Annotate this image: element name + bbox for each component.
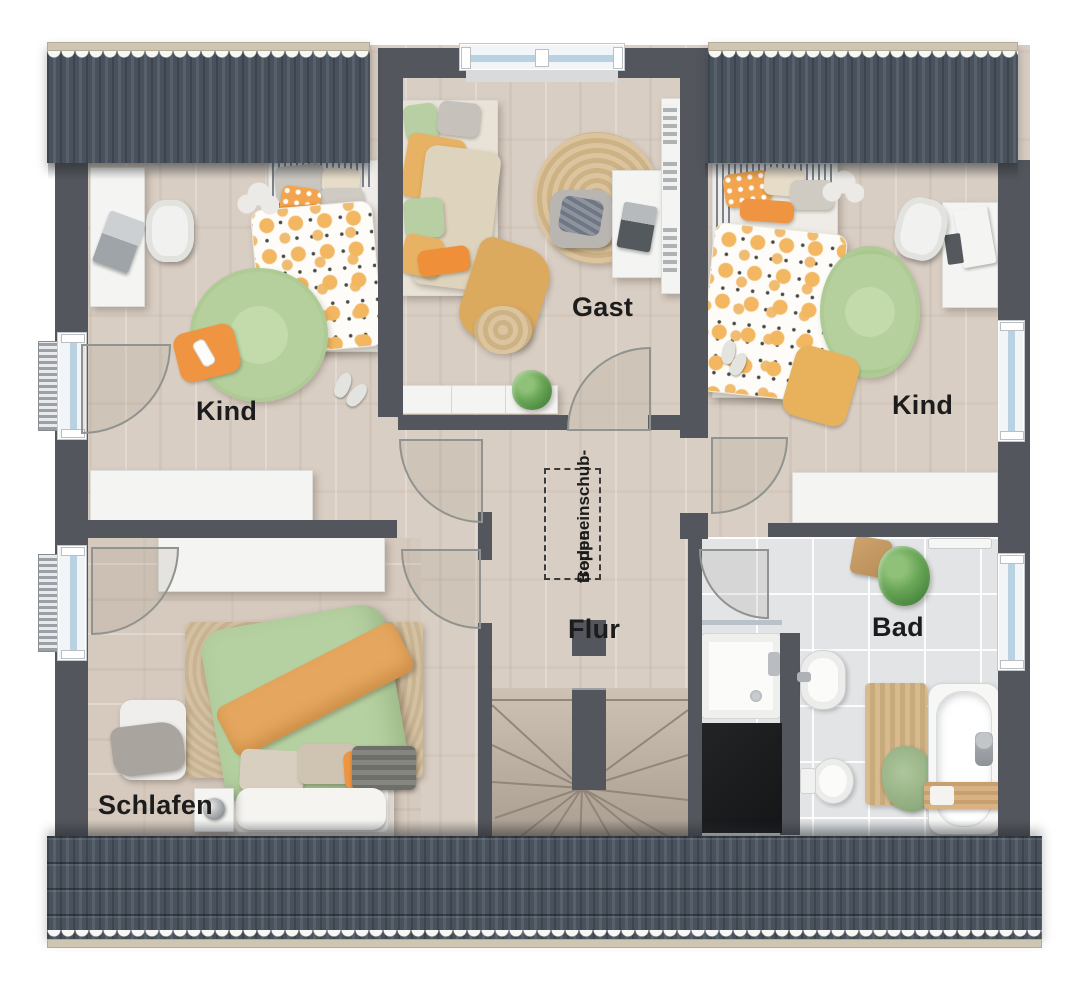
window (58, 546, 86, 660)
roof-section-top-left (47, 42, 370, 163)
wall (680, 48, 708, 438)
roof-shadow (48, 163, 368, 179)
roof-shadow (705, 163, 1018, 179)
roof-section-top-right (708, 42, 1018, 163)
shower-tray (700, 633, 782, 719)
blanket-gray (109, 720, 187, 778)
wall (55, 160, 88, 845)
tub-faucet (975, 732, 993, 766)
shower-faucet (768, 652, 780, 676)
room-label-gast: Gast (572, 292, 633, 323)
wall (680, 513, 708, 539)
shower-glass (700, 620, 782, 625)
room-label-bad: Bad (872, 612, 924, 643)
wall (998, 160, 1030, 845)
room-label-kind-left: Kind (196, 396, 257, 427)
books (663, 160, 677, 190)
pillow-beige (239, 748, 305, 793)
pouf (474, 306, 532, 354)
desk-chair (146, 200, 194, 262)
toilet-bowl (812, 758, 854, 804)
dark-shaft (698, 723, 782, 833)
towel-rail (928, 538, 992, 549)
roof-section-bottom (47, 836, 1042, 948)
toilet-tank (800, 768, 816, 794)
books (663, 104, 677, 144)
armchair-pillow (557, 195, 605, 238)
pillow-gray (436, 100, 481, 138)
window (460, 44, 624, 70)
window (998, 554, 1024, 670)
room-label-schlafen: Schlafen (98, 790, 213, 821)
cloud-decor (237, 182, 279, 216)
basin-faucet (797, 672, 811, 682)
stair-newel-wall (572, 688, 606, 790)
wall (55, 520, 397, 538)
wall (478, 623, 492, 845)
window-sill (466, 70, 618, 82)
shower-drain (750, 690, 762, 702)
bolster-pillow (739, 198, 794, 224)
wardrobe (158, 537, 385, 592)
window (998, 321, 1024, 441)
roof-shadow (55, 820, 1030, 836)
floor-plan: Kind Gast Kind Flur Schlafen Bad Bodenei… (0, 0, 1090, 992)
sideboard (90, 470, 313, 523)
plant (878, 546, 930, 606)
room-label-flur: Flur (568, 614, 620, 645)
plant (512, 370, 552, 410)
window (58, 333, 86, 439)
wall (398, 415, 568, 430)
attic-hatch-annotation: Bodeneinschub- treppe (544, 468, 601, 580)
tray-towel (930, 786, 954, 805)
wall (478, 512, 492, 560)
radiator (38, 554, 58, 652)
pillow-green (403, 197, 446, 240)
wall (768, 523, 998, 537)
sideboard (792, 472, 998, 523)
wall (688, 537, 702, 845)
radiator (38, 341, 58, 431)
wall (378, 48, 403, 417)
room-label-kind-right: Kind (892, 390, 953, 421)
shower-partition-wall (780, 633, 800, 835)
wall (648, 415, 708, 430)
folded-blanket-dark (352, 746, 416, 790)
books (663, 228, 677, 272)
